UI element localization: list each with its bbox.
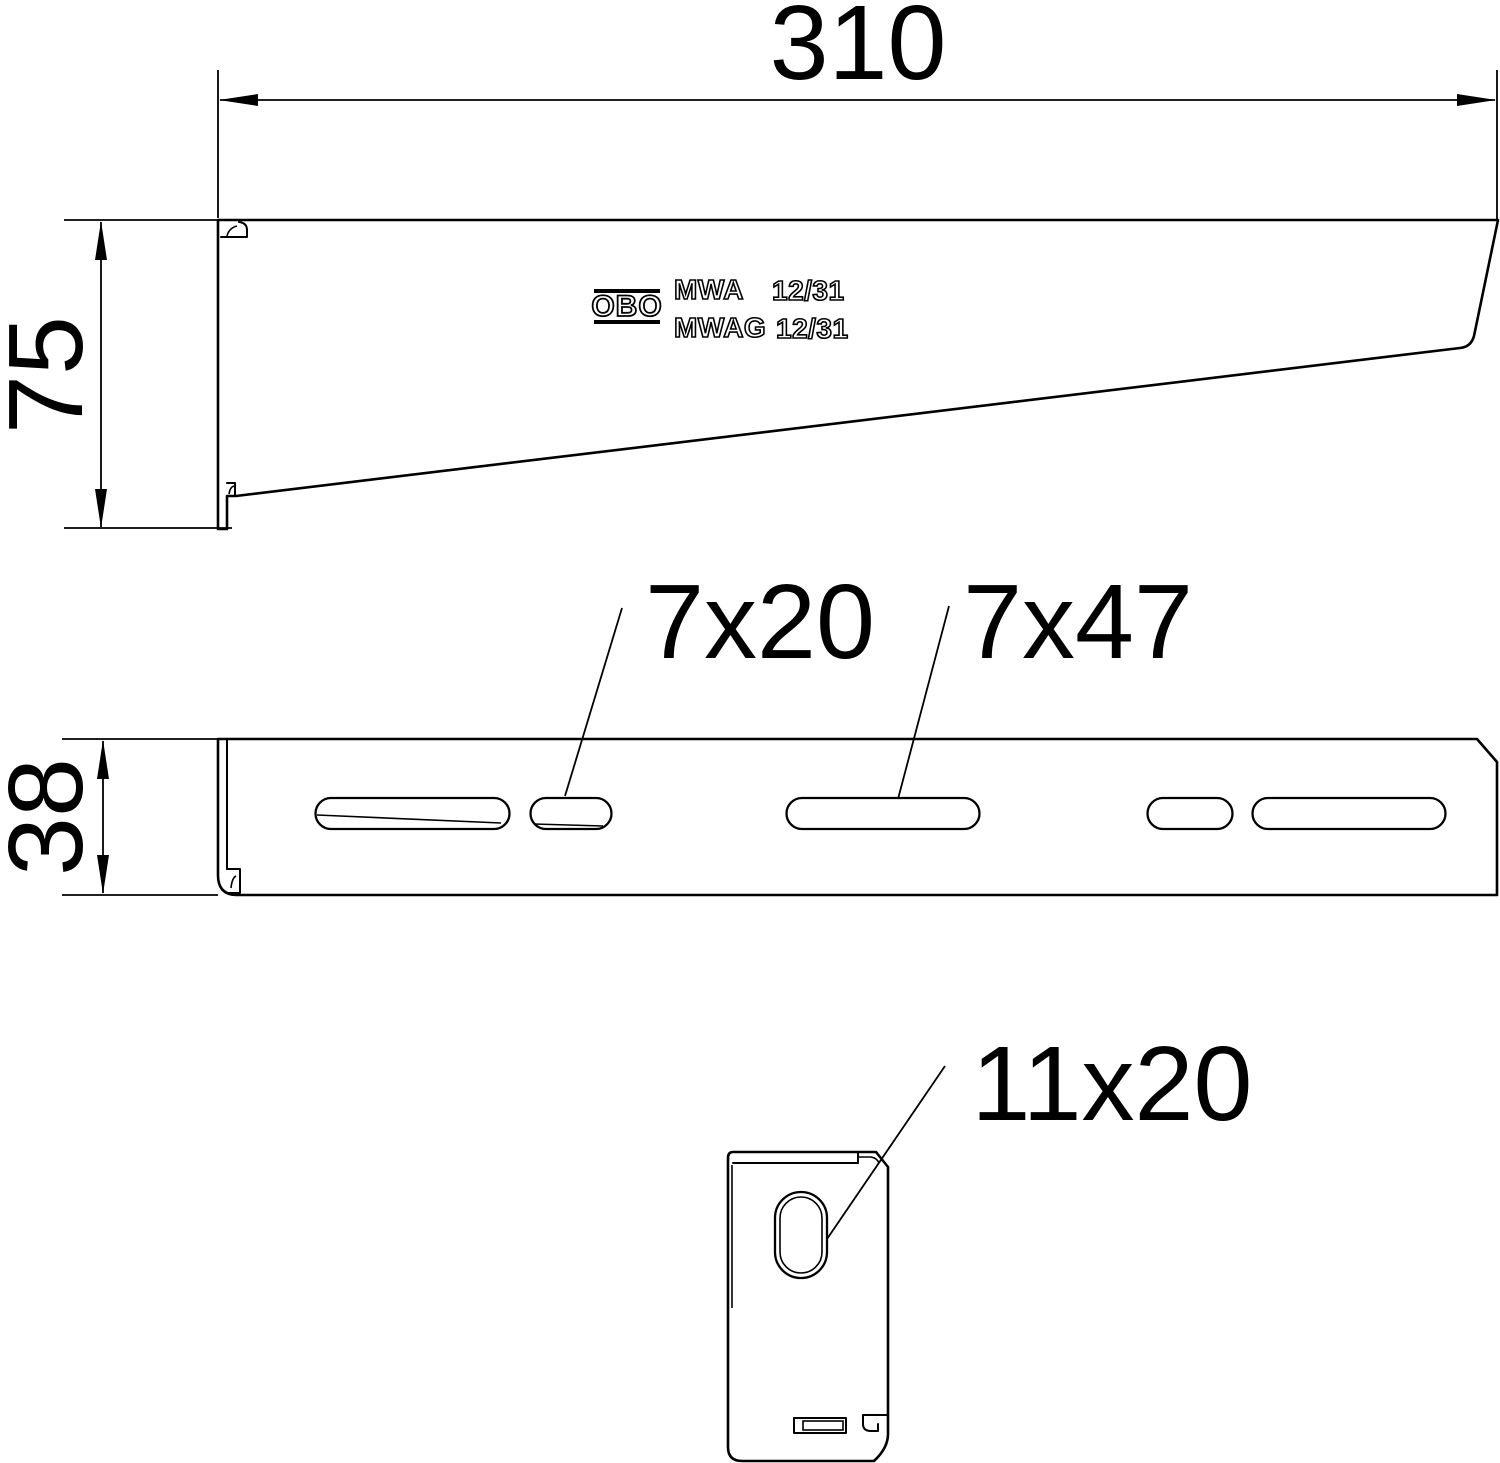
side-view-outline bbox=[218, 220, 1498, 529]
front-view-top-tab-curl bbox=[858, 1157, 879, 1163]
size-line2: 12/31 bbox=[776, 313, 849, 344]
leader-7x20 bbox=[565, 608, 622, 796]
slot-7x47-left bbox=[315, 798, 509, 829]
dim-75-label: 75 bbox=[0, 316, 105, 434]
bracket-drawing: OBO MWA 12/31 MWAG 12/31 310 75 bbox=[0, 0, 1500, 1463]
side-view-top-hook-curl bbox=[227, 226, 237, 236]
stamped-model-text: MWA 12/31 MWAG 12/31 bbox=[674, 274, 849, 344]
dim-75-arrow-top bbox=[95, 221, 107, 260]
front-view-corner-notch-hook bbox=[863, 1415, 878, 1431]
slot-11x20 bbox=[775, 1192, 827, 1278]
slot-edge-line-2 bbox=[534, 824, 603, 826]
leader-7x47 bbox=[898, 606, 949, 799]
side-view-bottom-tab-curl bbox=[229, 486, 234, 494]
size-line1: 12/31 bbox=[772, 275, 845, 306]
dim-310-arrow-right bbox=[1457, 94, 1496, 106]
top-view-tab-curl bbox=[231, 876, 236, 888]
slot-7x20-right bbox=[1148, 798, 1233, 829]
slot-7x47-middle bbox=[787, 798, 980, 829]
dim-38-label: 38 bbox=[0, 758, 105, 876]
callout-7x20: 7x20 bbox=[565, 563, 875, 796]
label-7x47: 7x47 bbox=[963, 563, 1193, 681]
callout-11x20: 11x20 bbox=[827, 1025, 1252, 1239]
dim-75-arrow-bottom bbox=[95, 489, 107, 528]
dim-310-arrow-left bbox=[219, 94, 258, 106]
top-view-bottom-tab bbox=[227, 869, 240, 893]
slot-edge-line-1 bbox=[317, 815, 501, 823]
top-view bbox=[218, 739, 1497, 895]
side-view: OBO MWA 12/31 MWAG 12/31 bbox=[218, 220, 1498, 529]
dimension-38: 38 bbox=[0, 739, 218, 895]
model-line1: MWA bbox=[674, 274, 744, 305]
obo-logo-text: OBO bbox=[591, 290, 662, 323]
top-view-outline bbox=[218, 739, 1497, 895]
label-7x20: 7x20 bbox=[645, 563, 875, 681]
technical-drawing-canvas: OBO MWA 12/31 MWAG 12/31 310 75 bbox=[0, 0, 1500, 1463]
model-line2: MWAG bbox=[674, 312, 766, 343]
callout-7x47: 7x47 bbox=[898, 563, 1193, 799]
front-view bbox=[728, 1152, 888, 1461]
slot-11x20-inner-edge bbox=[780, 1197, 822, 1273]
slot-7x47-right bbox=[1253, 798, 1446, 829]
side-view-top-hook bbox=[221, 222, 247, 237]
front-view-hook-slot-inner bbox=[803, 1421, 843, 1430]
label-11x20: 11x20 bbox=[972, 1025, 1253, 1143]
dimension-310: 310 bbox=[218, 0, 1497, 219]
dim-310-label: 310 bbox=[770, 0, 947, 102]
dimension-75: 75 bbox=[0, 220, 232, 528]
obo-logo: OBO bbox=[591, 289, 662, 324]
